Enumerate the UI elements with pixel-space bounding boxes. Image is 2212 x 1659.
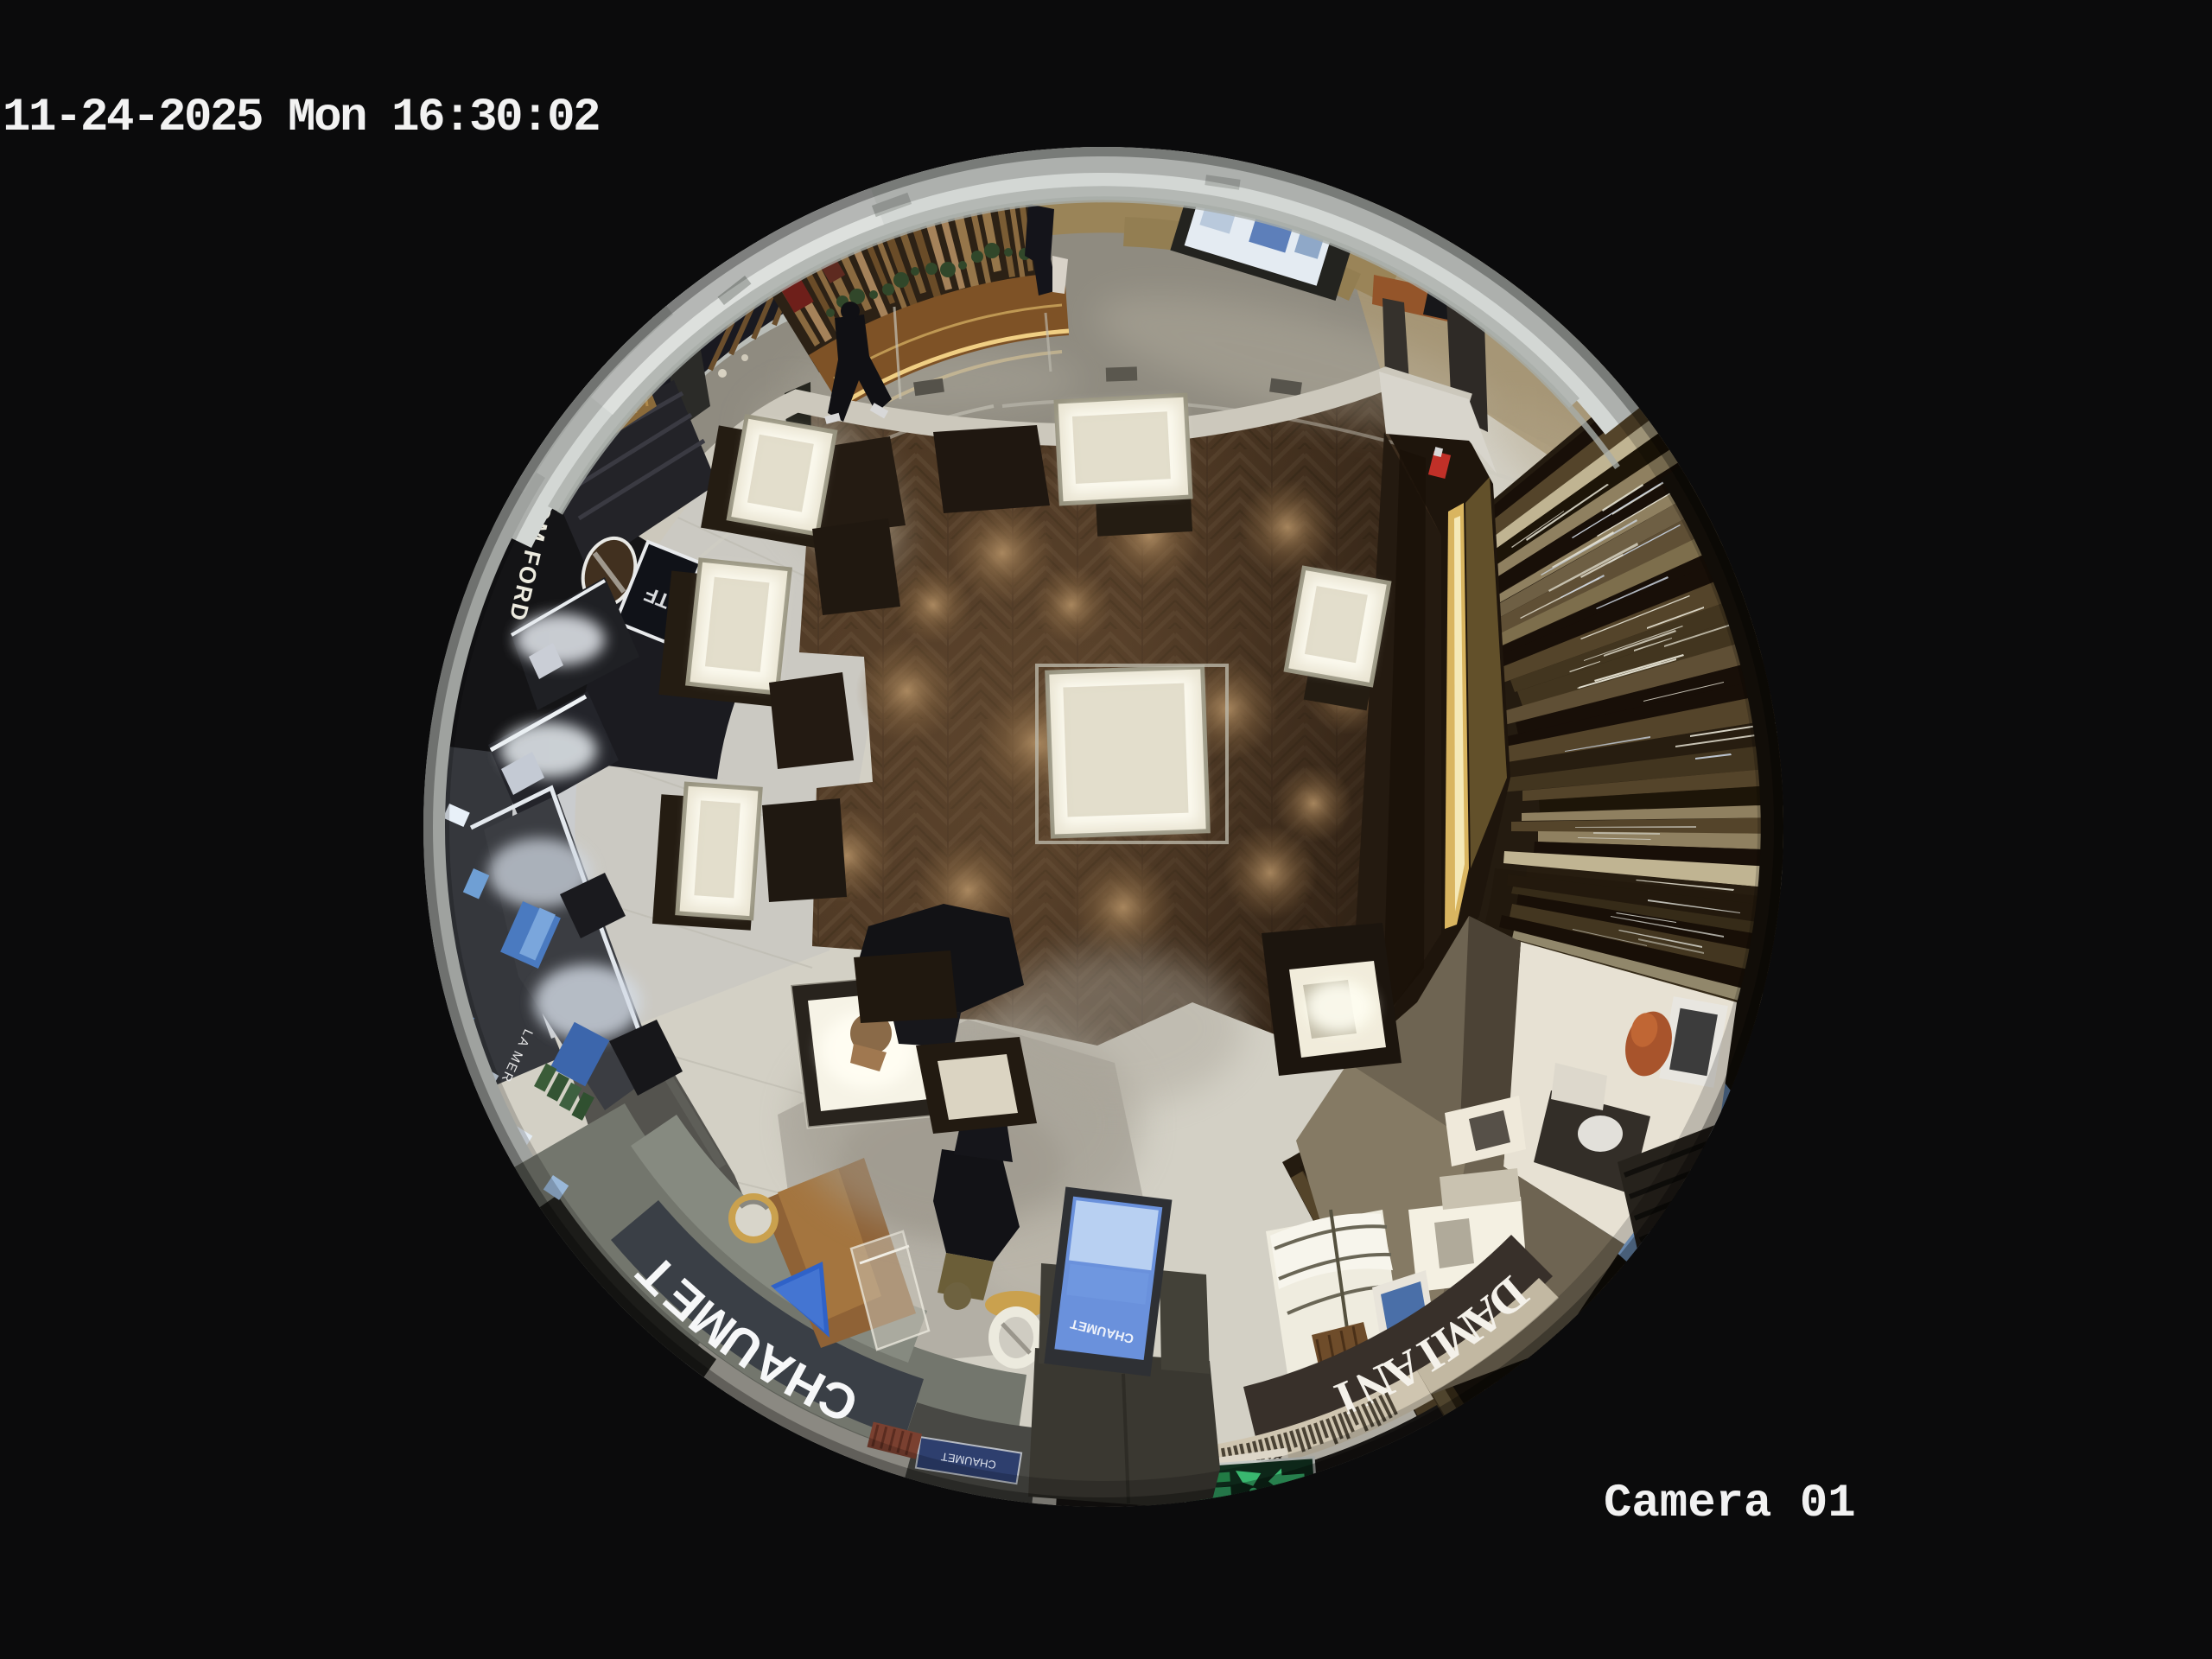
svg-text:11-24-2025 Mon 16:30:02: 11-24-2025 Mon 16:30:02	[3, 92, 599, 144]
svg-text:Camera 01: Camera 01	[1604, 1478, 1856, 1530]
